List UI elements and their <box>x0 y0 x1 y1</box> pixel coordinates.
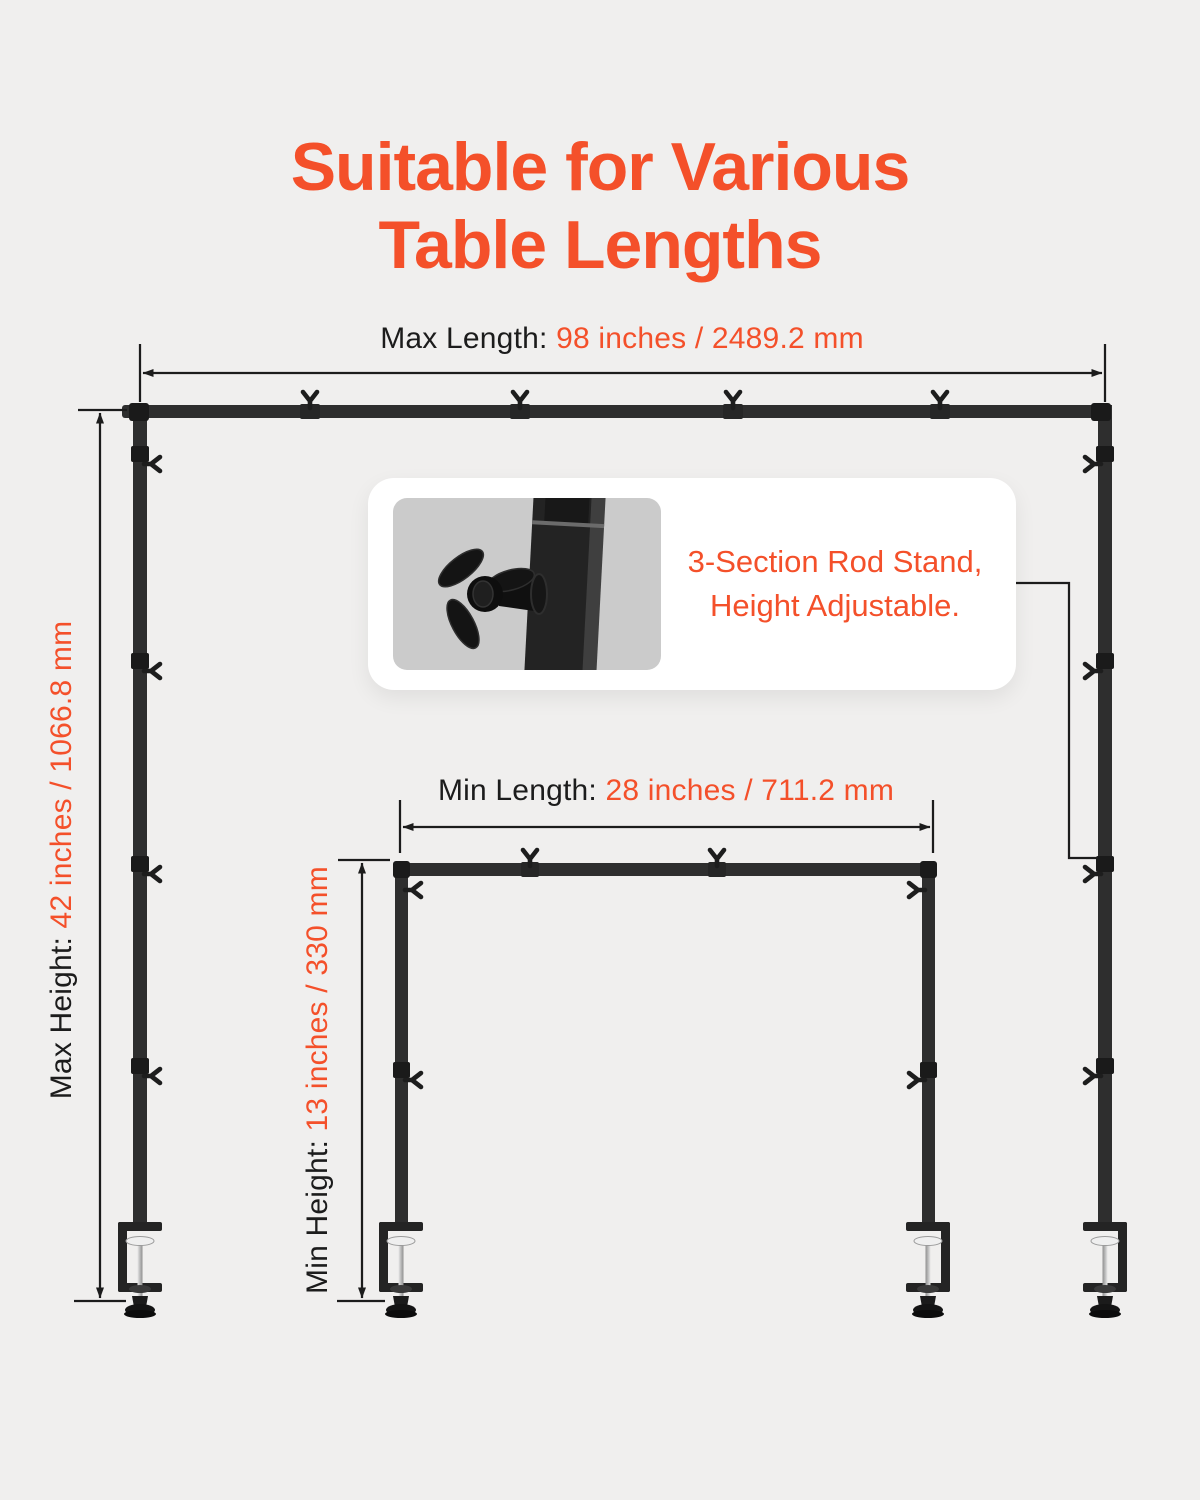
callout-line1: 3-Section Rod Stand, <box>668 540 1002 584</box>
desk-clamp-icon <box>379 1222 423 1318</box>
callout-connector-line <box>1016 583 1098 858</box>
desk-clamp-icon <box>1083 1222 1127 1318</box>
infographic-canvas: Suitable for Various Table Lengths <box>0 0 1200 1500</box>
min-length-value: 28 inches / 711.2 mm <box>605 774 894 807</box>
feature-callout-text: 3-Section Rod Stand, Height Adjustable. <box>668 540 1002 628</box>
min-length-label: Min Length: 28 inches / 711.2 mm <box>438 774 894 808</box>
desk-clamp-icon <box>118 1222 162 1318</box>
desk-clamp-icon <box>906 1222 950 1318</box>
min-height-label: Min Height: 13 inches / 330 mm <box>301 866 335 1294</box>
max-height-label: Max Height: 42 inches / 1066.8 mm <box>45 621 79 1100</box>
stand-diagram <box>0 0 1200 1500</box>
max-height-caption: Max Height: <box>45 937 78 1099</box>
min-height-caption: Min Height: <box>301 1140 334 1294</box>
rod-closeup-photo <box>393 498 661 670</box>
min-height-value: 13 inches / 330 mm <box>301 866 334 1131</box>
max-length-value: 98 inches / 2489.2 mm <box>556 322 864 355</box>
max-length-label: Max Length: 98 inches / 2489.2 mm <box>380 322 864 356</box>
stand-min-graphic <box>379 850 950 1318</box>
max-height-value: 42 inches / 1066.8 mm <box>45 621 78 929</box>
min-length-caption: Min Length: <box>438 774 597 807</box>
callout-line2: Height Adjustable. <box>668 584 1002 628</box>
dimension-max-height <box>74 410 127 1301</box>
max-length-caption: Max Length: <box>380 322 547 355</box>
feature-callout-card: 3-Section Rod Stand, Height Adjustable. <box>368 478 1016 690</box>
